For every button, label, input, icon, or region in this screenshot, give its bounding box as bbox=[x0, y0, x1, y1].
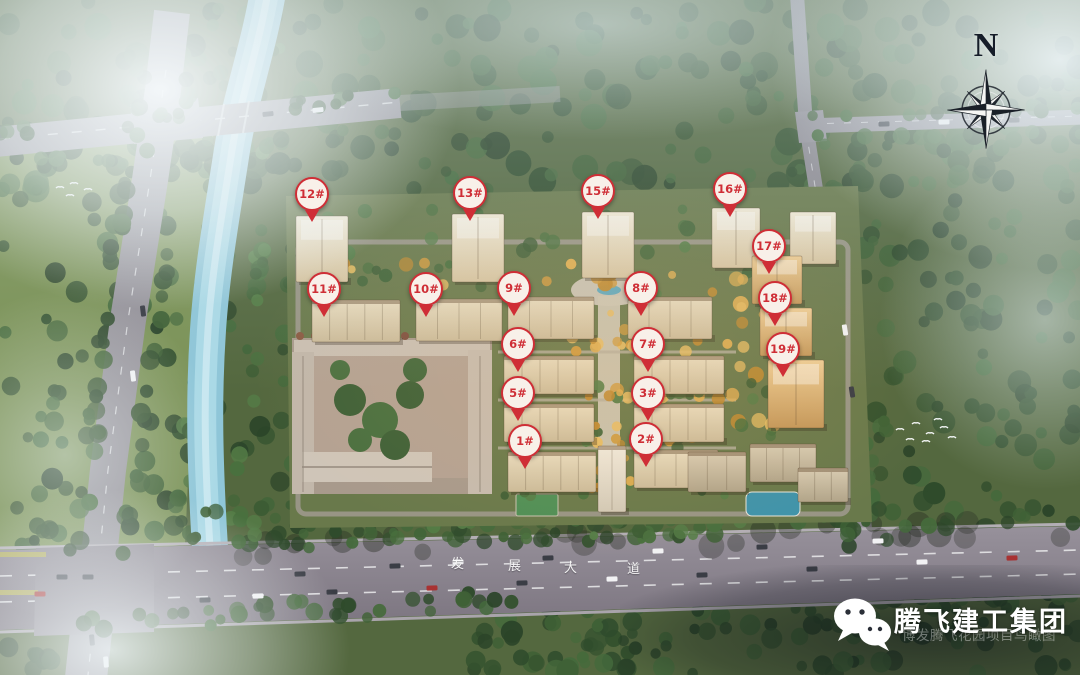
building-marker-15: 15# bbox=[581, 174, 615, 208]
road-name-char: 展 bbox=[508, 555, 521, 574]
building-marker-label: 16# bbox=[717, 182, 743, 196]
building-marker-7: 7# bbox=[631, 327, 665, 361]
building-retail-a bbox=[688, 452, 749, 495]
building-marker-16: 16# bbox=[713, 172, 747, 206]
building-retail-c bbox=[798, 468, 851, 505]
building-entrance-gate bbox=[598, 446, 629, 515]
building-marker-9: 9# bbox=[497, 271, 531, 305]
building-marker-2: 2# bbox=[629, 422, 663, 456]
building-marker-label: 9# bbox=[505, 281, 523, 295]
building-marker-label: 5# bbox=[509, 386, 527, 400]
road-name-char: 道 bbox=[627, 558, 640, 577]
building-marker-1: 1# bbox=[508, 424, 542, 458]
building-marker-label: 15# bbox=[585, 184, 611, 198]
building-marker-label: 12# bbox=[299, 187, 325, 201]
building-marker-label: 1# bbox=[516, 434, 534, 448]
building-marker-label: 10# bbox=[413, 282, 439, 296]
building-marker-17: 17# bbox=[752, 229, 786, 263]
courtyard-complex bbox=[292, 338, 492, 494]
building-marker-label: 19# bbox=[770, 342, 796, 356]
building-marker-10: 10# bbox=[409, 272, 443, 306]
building-marker-13: 13# bbox=[453, 176, 487, 210]
building-marker-label: 17# bbox=[756, 239, 782, 253]
building-marker-18: 18# bbox=[758, 281, 792, 315]
building-marker-5: 5# bbox=[501, 376, 535, 410]
building-marker-19: 19# bbox=[766, 332, 800, 366]
road-name-char: 大 bbox=[564, 557, 577, 576]
building-marker-label: 18# bbox=[762, 291, 788, 305]
building-marker-label: 3# bbox=[639, 386, 657, 400]
building-marker-label: 2# bbox=[637, 432, 655, 446]
building-marker-label: 7# bbox=[639, 337, 657, 351]
building-marker-label: 11# bbox=[311, 282, 337, 296]
building-marker-label: 13# bbox=[457, 186, 483, 200]
road-name-char: 发 bbox=[451, 553, 464, 572]
building-marker-label: 8# bbox=[632, 281, 650, 295]
site-plan-scene bbox=[0, 0, 1080, 675]
aerial-render: 发展大道 12#13#15#16#17#18#19#11#10#9#8#6#7#… bbox=[0, 0, 1080, 675]
building-marker-11: 11# bbox=[307, 272, 341, 306]
compass-rose-icon bbox=[940, 64, 1032, 156]
building-marker-6: 6# bbox=[501, 327, 535, 361]
building-marker-3: 3# bbox=[631, 376, 665, 410]
building-13# bbox=[452, 214, 507, 285]
building-marker-12: 12# bbox=[295, 177, 329, 211]
building-marker-8: 8# bbox=[624, 271, 658, 305]
building-marker-label: 6# bbox=[509, 337, 527, 351]
compass-north-label: N bbox=[936, 28, 1036, 64]
compass: N bbox=[936, 28, 1036, 156]
